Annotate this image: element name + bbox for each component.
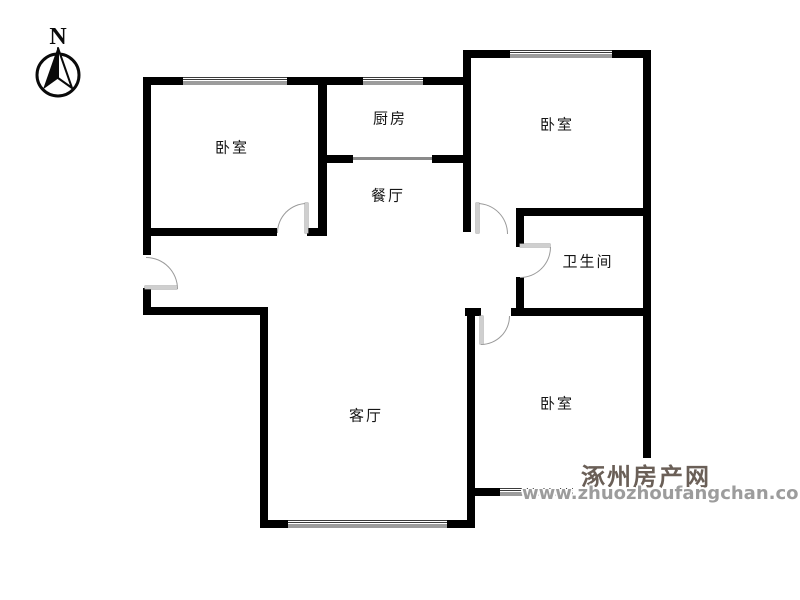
- door-bedroom-tr-arc: [477, 203, 508, 234]
- wall-bathroom-bottom: [511, 308, 651, 316]
- kitchen-pass-line: [353, 157, 432, 160]
- room-label-bedroom-top-right: 卧室: [540, 118, 574, 133]
- room-label-bedroom-bottom-right: 卧室: [540, 397, 574, 412]
- compass-icon: [33, 44, 83, 98]
- door-entry-leaf: [145, 286, 177, 289]
- window-bedroom-top-right: [510, 50, 612, 58]
- wall-top-left-a: [143, 77, 183, 85]
- door-bathroom-arc: [520, 247, 551, 278]
- door-bedroom-tr-leaf: [476, 203, 479, 233]
- watermark-site-url: www.zhuozhoufangchan.com: [522, 483, 800, 504]
- wall-living-bottom-b: [447, 520, 475, 528]
- wall-living-left: [260, 307, 268, 528]
- wall-bathroom-top: [516, 208, 651, 216]
- wall-bedroom-tl-bottom-a: [143, 228, 277, 236]
- wall-kitchen-dining-a: [327, 155, 353, 163]
- window-living: [288, 520, 447, 528]
- wall-bedroom-br-bottom: [467, 488, 500, 496]
- window-kitchen: [363, 77, 423, 85]
- wall-bedroom-tr-left: [463, 50, 471, 232]
- wall-bathroom-left-upper: [516, 208, 524, 247]
- floor-plan: N: [0, 0, 800, 600]
- wall-bedroom-tl-bottom-b: [307, 228, 327, 236]
- room-label-dining: 餐厅: [371, 189, 405, 204]
- door-bedroom-tl-leaf: [305, 203, 308, 233]
- wall-bedroom-kitchen-divider: [318, 77, 327, 236]
- door-entry-arc: [146, 257, 178, 289]
- wall-right-outer: [643, 50, 651, 458]
- room-label-kitchen: 厨房: [373, 112, 407, 127]
- door-bedroom-br-leaf: [480, 316, 483, 344]
- door-bedroom-br-arc: [481, 316, 510, 345]
- wall-hallway-bottom: [143, 307, 268, 315]
- room-label-bedroom-top-left: 卧室: [215, 141, 249, 156]
- room-label-living: 客厅: [349, 409, 383, 424]
- wall-living-bottom-a: [260, 520, 288, 528]
- door-bedroom-tl-arc: [277, 203, 307, 233]
- door-bathroom-leaf: [520, 244, 550, 247]
- window-bedroom-top-left: [183, 77, 287, 85]
- room-label-bathroom: 卫生间: [562, 255, 613, 270]
